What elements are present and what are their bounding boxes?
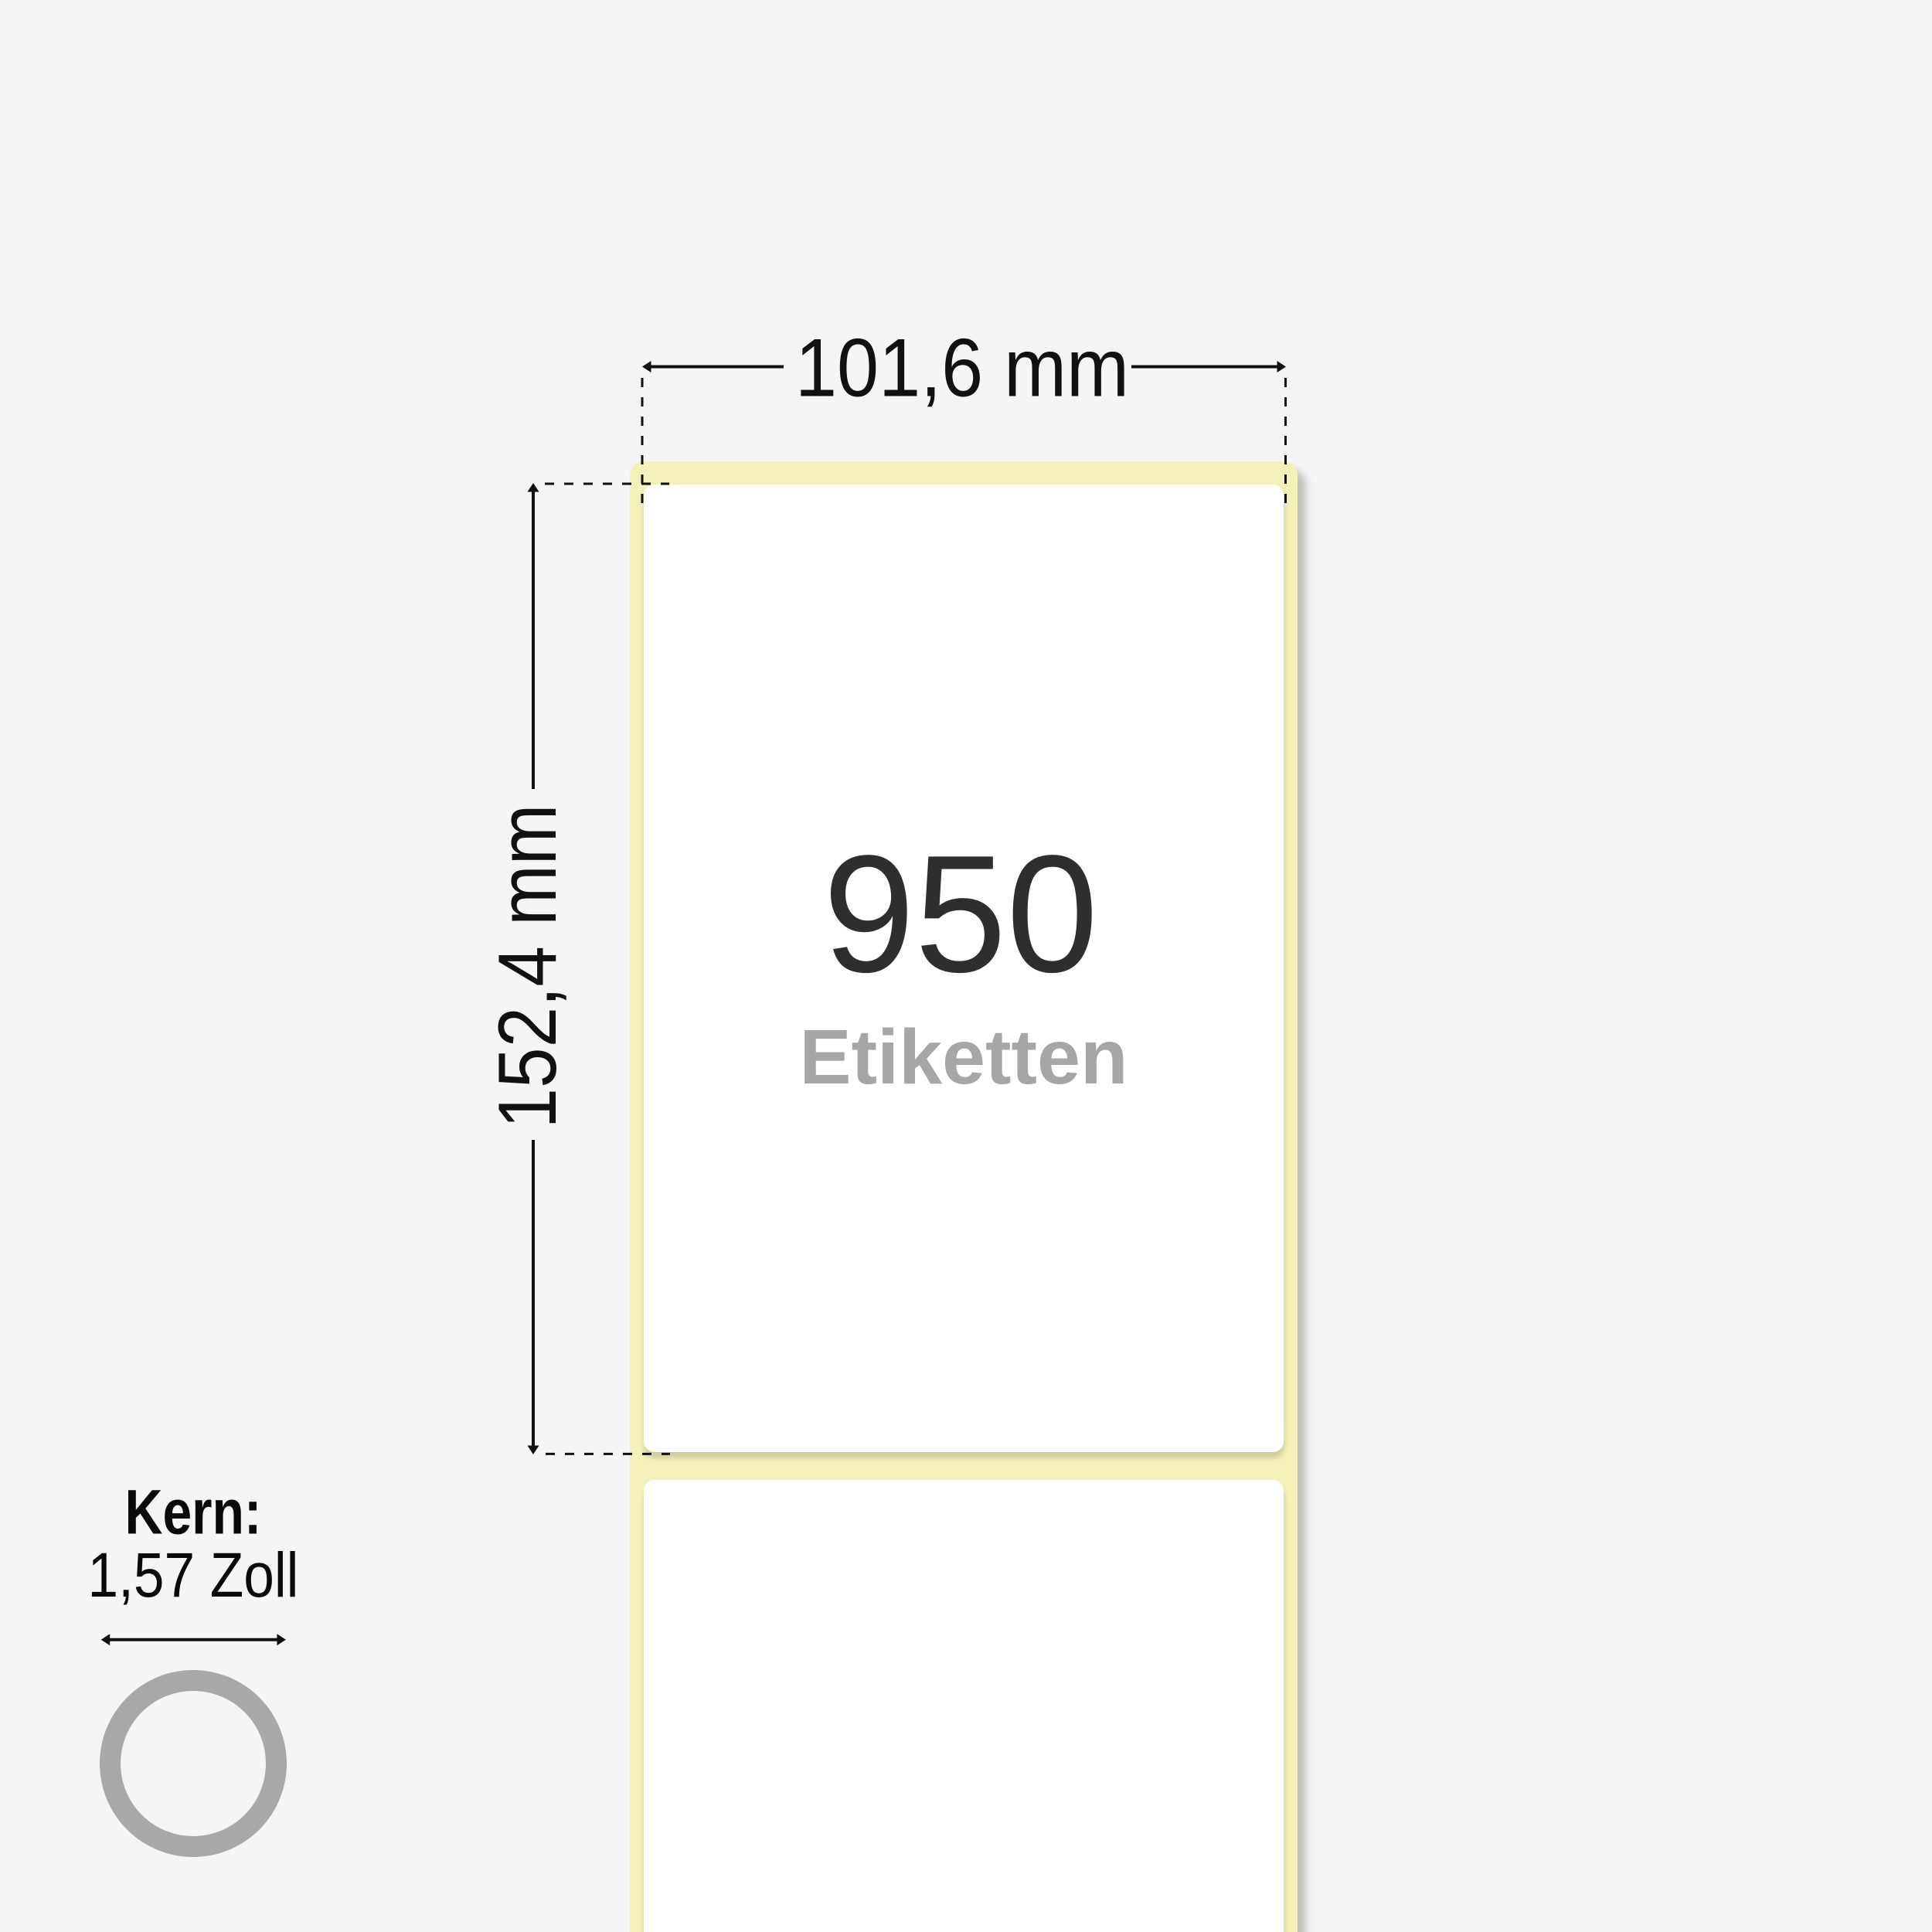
svg-text:950: 950 <box>823 820 1098 1007</box>
svg-text:Kern:: Kern: <box>125 1478 262 1548</box>
svg-text:101,6 mm: 101,6 mm <box>795 321 1129 414</box>
svg-text:1,57 Zoll: 1,57 Zoll <box>88 1540 299 1611</box>
svg-text:Etiketten: Etiketten <box>800 1014 1128 1100</box>
svg-text:152,4 mm: 152,4 mm <box>481 804 573 1129</box>
